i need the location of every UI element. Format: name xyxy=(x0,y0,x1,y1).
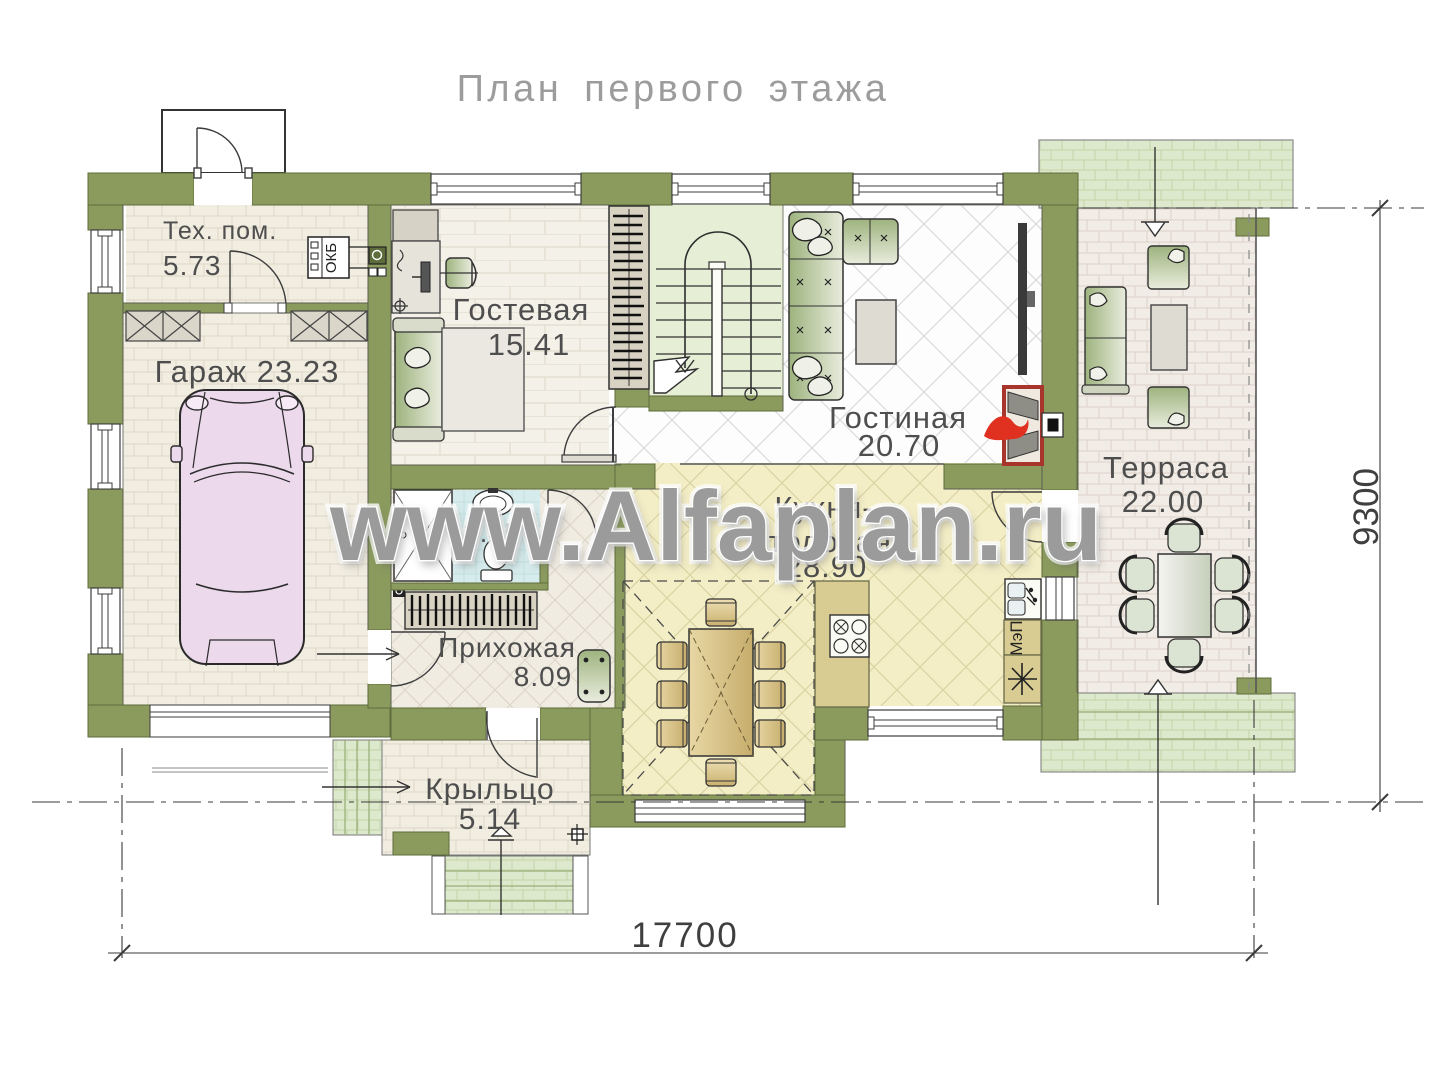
svg-text:Терраса: Терраса xyxy=(1103,450,1229,485)
svg-text:План первого этажа: План первого этажа xyxy=(457,68,890,110)
svg-text:Гостевая: Гостевая xyxy=(453,292,590,327)
svg-text:5.14: 5.14 xyxy=(459,803,521,836)
svg-text:www.Alfaplan.ru: www.Alfaplan.ru xyxy=(329,470,1102,581)
svg-text:Прихожая: Прихожая xyxy=(438,632,576,663)
svg-text:17700: 17700 xyxy=(631,916,738,955)
svg-text:5.73: 5.73 xyxy=(163,250,222,281)
svg-text:ОКБ: ОКБ xyxy=(323,243,340,273)
svg-text:8.09: 8.09 xyxy=(514,661,573,692)
svg-text:Крыльцо: Крыльцо xyxy=(425,773,554,806)
svg-text:Тех. пом.: Тех. пом. xyxy=(163,217,277,245)
svg-text:20.70: 20.70 xyxy=(858,428,941,463)
svg-text:Гараж 23.23: Гараж 23.23 xyxy=(155,354,340,389)
svg-text:МэП: МэП xyxy=(1007,620,1026,655)
svg-text:9300: 9300 xyxy=(1347,468,1386,546)
svg-text:22.00: 22.00 xyxy=(1122,484,1205,519)
svg-text:15.41: 15.41 xyxy=(488,327,571,362)
